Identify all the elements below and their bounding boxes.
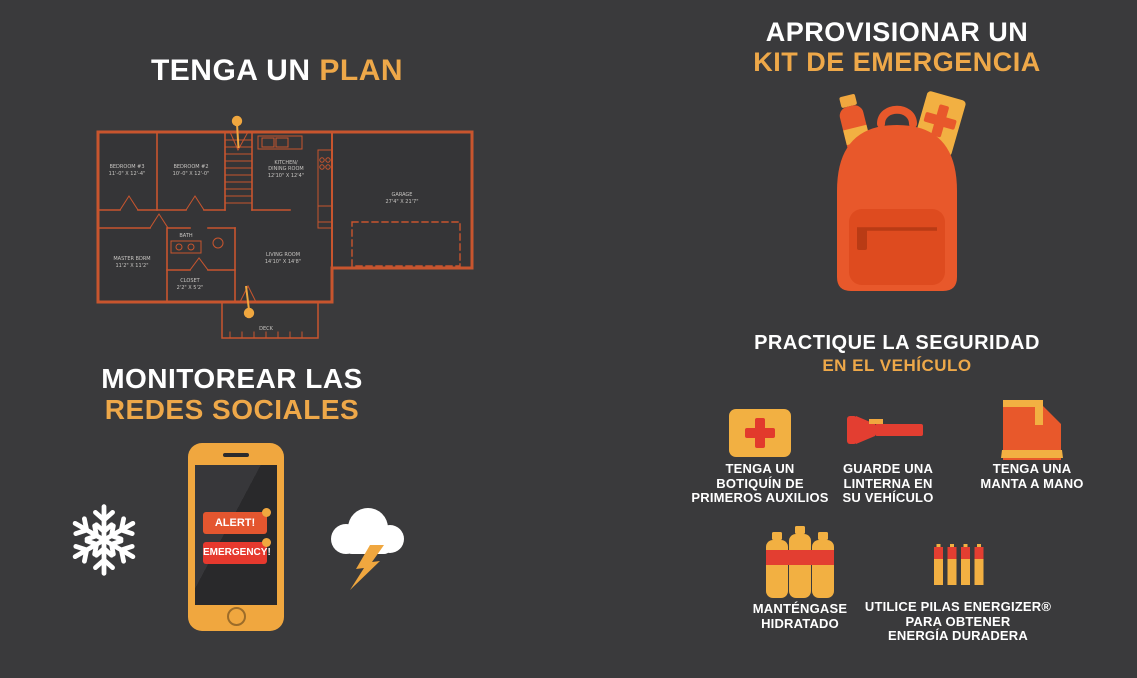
first-aid-kit-caption: TENGA UN BOTIQUÍN DE PRIMEROS AUXILIOS (680, 462, 840, 506)
notification-dot (262, 508, 271, 517)
vehicle-section-title: PRACTIQUE LA SEGURIDAD EN EL VEHÍCULO (697, 332, 1097, 375)
batteries-caption: UTILICE PILAS ENERGIZER® PARA OBTENER EN… (858, 600, 1058, 644)
plan-title-accent: PLAN (319, 54, 403, 87)
storm-cloud-icon (320, 497, 415, 592)
emergency-preparedness-infographic: TENGA UN PLAN (0, 0, 1137, 678)
room-dims: 10'-0" X 12'-0" (173, 171, 210, 177)
phone-screen: ALERT! EMERGENCY! (195, 465, 277, 605)
room-dims: 12'10" X 12'4" (268, 173, 304, 179)
batteries-icon (934, 544, 984, 585)
kit-title-accent: KIT DE EMERGENCIA (697, 47, 1097, 77)
smartphone-icon: ALERT! EMERGENCY! (188, 443, 284, 631)
room-label: DECK (259, 326, 274, 332)
first-aid-kit-icon (729, 409, 791, 457)
room-label: BATH (179, 233, 193, 239)
vehicle-title-white: PRACTIQUE LA SEGURIDAD (697, 332, 1097, 354)
room-label: LIVING ROOM (266, 252, 300, 258)
emergency-label: EMERGENCY! (203, 547, 271, 558)
battery (934, 544, 943, 585)
notification-dot (262, 538, 271, 547)
room-label: DINING ROOM (268, 166, 303, 172)
plan-section-title: TENGA UN PLAN (57, 54, 497, 88)
room-dims: 11'2" X 11'2" (115, 263, 148, 269)
social-title-white: MONITOREAR LAS (37, 363, 427, 394)
flashlight-caption: GUARDE UNA LINTERNA EN SU VEHÍCULO (833, 462, 943, 506)
kit-section-title: APROVISIONAR UN KIT DE EMERGENCIA (697, 17, 1097, 77)
room-dims: 27'4" X 21'7" (385, 199, 418, 205)
water-bottles-icon (766, 526, 834, 598)
room-label: GARAGE (392, 192, 413, 198)
blanket-icon (1001, 398, 1063, 462)
alert-label: ALERT! (215, 517, 255, 529)
room-label: BEDROOM #3 (109, 164, 144, 170)
social-section-title: MONITOREAR LAS REDES SOCIALES (37, 363, 427, 426)
phone-home-button (227, 607, 246, 626)
room-label: CLOSET (180, 278, 200, 284)
water-bottles-caption: MANTÉNGASE HIDRATADO (735, 602, 865, 631)
snowflake-icon (60, 500, 148, 580)
flashlight-icon (847, 416, 923, 444)
vehicle-title-accent: EN EL VEHÍCULO (697, 356, 1097, 375)
battery (975, 544, 984, 585)
room-dims: 2'2" X 5'2" (177, 285, 204, 291)
blanket-caption: TENGA UNA MANTA A MANO (959, 462, 1105, 491)
emergency-notification: EMERGENCY! (203, 542, 267, 564)
battery (948, 544, 957, 585)
room-label: MASTER BDRM (113, 256, 150, 262)
room-dims: 11'-0" X 12'-4" (109, 171, 146, 177)
room-label: BEDROOM #2 (173, 164, 208, 170)
social-title-accent: REDES SOCIALES (37, 394, 427, 425)
alert-notification: ALERT! (203, 512, 267, 534)
room-dims: 14'10" X 14'8" (265, 259, 301, 265)
kit-title-white: APROVISIONAR UN (697, 17, 1097, 47)
phone-speaker (223, 453, 249, 457)
floor-plan-diagram: BEDROOM #3 11'-0" X 12'-4" BEDROOM #2 10… (90, 110, 482, 345)
backpack-icon (824, 88, 970, 293)
plan-title-white: TENGA UN (151, 54, 311, 87)
battery (961, 544, 970, 585)
